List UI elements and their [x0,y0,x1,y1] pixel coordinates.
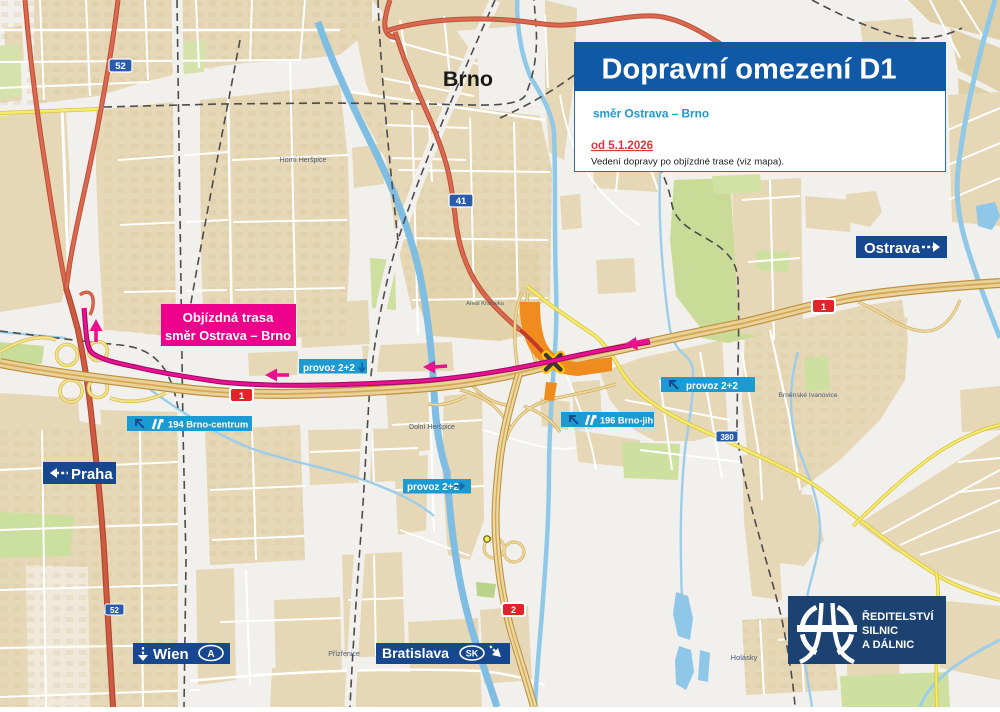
svg-text:41: 41 [456,196,467,207]
svg-text:směr Ostrava – Brno: směr Ostrava – Brno [165,328,291,343]
svg-text:Přízřenice: Přízřenice [328,651,360,658]
svg-text:Brno: Brno [443,67,493,91]
svg-text:1: 1 [821,302,827,313]
svg-text:od 5.1.2026: od 5.1.2026 [591,140,653,152]
svg-text:Wien: Wien [153,646,189,663]
svg-text:2: 2 [511,605,516,615]
svg-text:ŘEDITELSTVÍ: ŘEDITELSTVÍ [862,610,934,623]
svg-text:Praha: Praha [71,466,113,483]
svg-text:380: 380 [720,433,734,442]
svg-text:SK: SK [466,649,479,659]
svg-text:Dolní Heršpice: Dolní Heršpice [409,424,455,431]
svg-text:Bratislava: Bratislava [382,645,449,661]
svg-text:A: A [207,649,214,660]
svg-text:A DÁLNIC: A DÁLNIC [862,638,914,651]
svg-text:196 Brno-jih: 196 Brno-jih [600,416,653,426]
svg-text:provoz 2+2: provoz 2+2 [303,363,355,374]
svg-text:Objízdná trasa: Objízdná trasa [183,310,275,325]
svg-text:52: 52 [115,61,126,72]
svg-text:směr Ostrava – Brno: směr Ostrava – Brno [593,107,709,121]
svg-text:194 Brno-centrum: 194 Brno-centrum [168,419,248,430]
svg-text:1: 1 [239,391,245,402]
svg-text:Areál Královka: Areál Královka [466,301,504,307]
svg-text:Vedení dopravy po objízdné tra: Vedení dopravy po objízdné trase (viz ma… [591,157,784,168]
svg-text:Brněnské Ivanovice: Brněnské Ivanovice [778,392,838,399]
svg-text:Horní Heršpice: Horní Heršpice [280,157,327,164]
svg-text:SILNIC: SILNIC [862,625,898,637]
svg-text:provoz 2+2: provoz 2+2 [407,482,459,493]
svg-text:Holásky: Holásky [731,653,758,662]
svg-text:Dopravní omezení D1: Dopravní omezení D1 [602,54,897,86]
svg-text:Ostrava: Ostrava [864,240,921,257]
svg-text:52: 52 [110,606,119,615]
svg-text:provoz 2+2: provoz 2+2 [686,381,738,392]
